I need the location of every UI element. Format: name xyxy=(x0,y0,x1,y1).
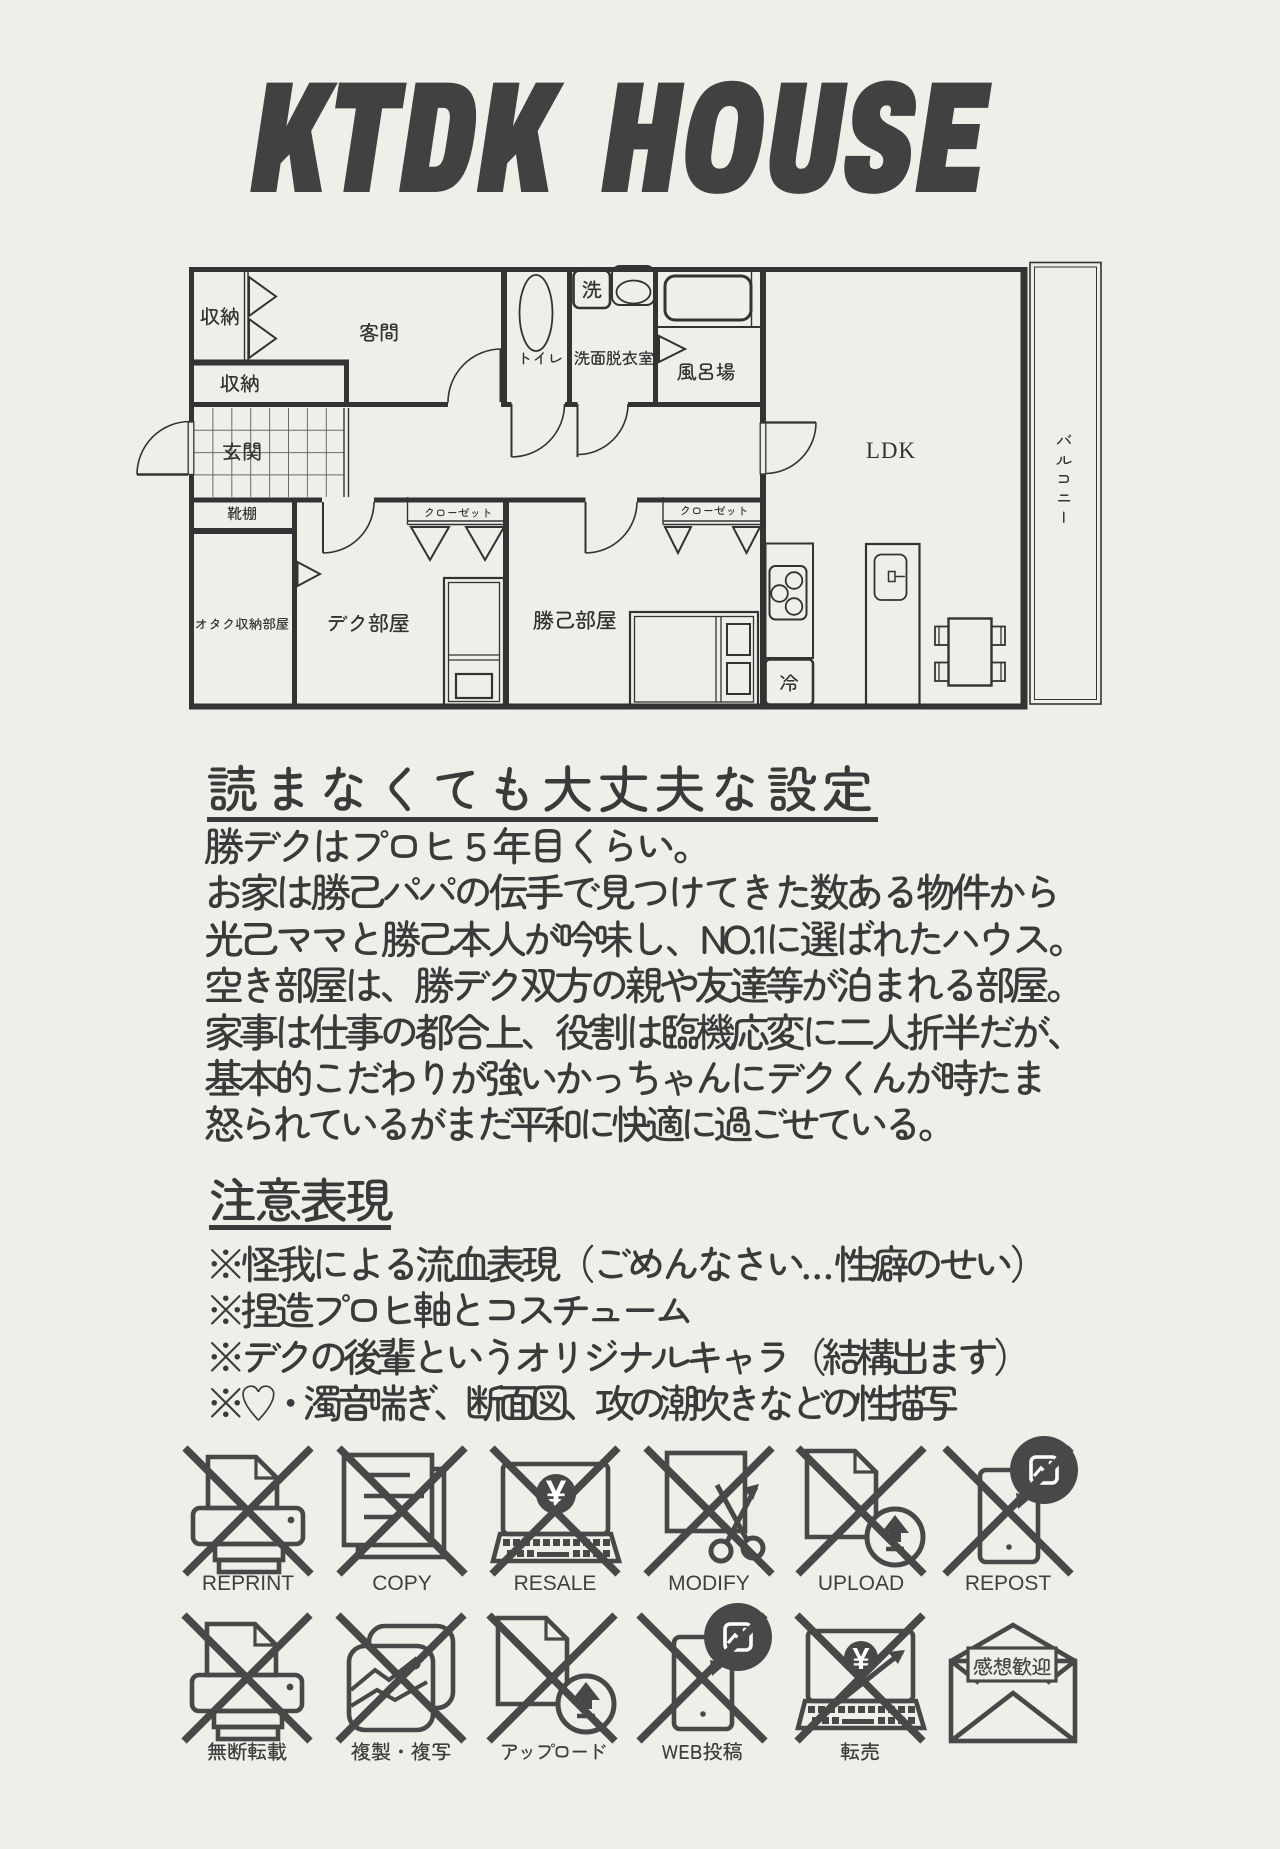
svg-text:アップロード: アップロード xyxy=(500,1736,607,1765)
svg-text:感想歓迎: 感想歓迎 xyxy=(973,1651,1052,1680)
svg-text:UPLOAD: UPLOAD xyxy=(818,1572,904,1595)
svg-text:MODIFY: MODIFY xyxy=(668,1572,750,1595)
svg-text:REPRINT: REPRINT xyxy=(202,1572,294,1595)
svg-text:REPOST: REPOST xyxy=(965,1572,1052,1595)
svg-text:無断転載: 無断転載 xyxy=(207,1736,287,1765)
svg-text:RESALE: RESALE xyxy=(514,1572,597,1595)
svg-text:WEB投稿: WEB投稿 xyxy=(661,1736,742,1765)
svg-text:複製・複写: 複製・複写 xyxy=(351,1736,451,1765)
svg-text:COPY: COPY xyxy=(372,1572,432,1595)
svg-text:転売: 転売 xyxy=(840,1736,880,1765)
